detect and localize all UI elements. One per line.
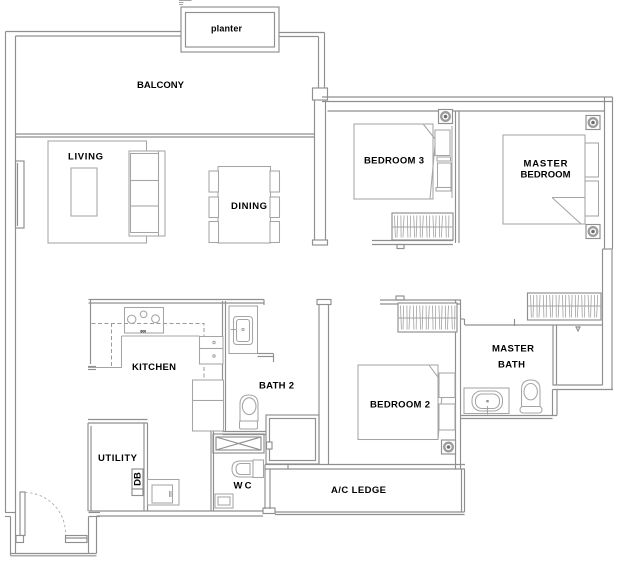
svg-text:BATH: BATH (498, 360, 525, 371)
svg-text:BEDROOM: BEDROOM (521, 170, 571, 181)
svg-text:DB: DB (133, 472, 144, 486)
svg-text:UTILITY: UTILITY (98, 453, 138, 464)
svg-text:MASTER: MASTER (492, 344, 534, 355)
svg-text:BEDROOM 2: BEDROOM 2 (370, 400, 430, 411)
svg-text:600: 600 (140, 330, 146, 334)
svg-text:BEDROOM 3: BEDROOM 3 (364, 156, 424, 167)
svg-text:LIVING: LIVING (68, 152, 103, 163)
svg-text:planter: planter (211, 24, 242, 34)
svg-text:BALCONY: BALCONY (137, 80, 185, 91)
svg-text:DINING: DINING (231, 201, 267, 212)
svg-text:BATH 2: BATH 2 (259, 381, 294, 392)
svg-text:MASTER: MASTER (524, 159, 568, 170)
svg-text:A/C LEDGE: A/C LEDGE (331, 485, 386, 496)
svg-text:KITCHEN: KITCHEN (132, 362, 176, 373)
